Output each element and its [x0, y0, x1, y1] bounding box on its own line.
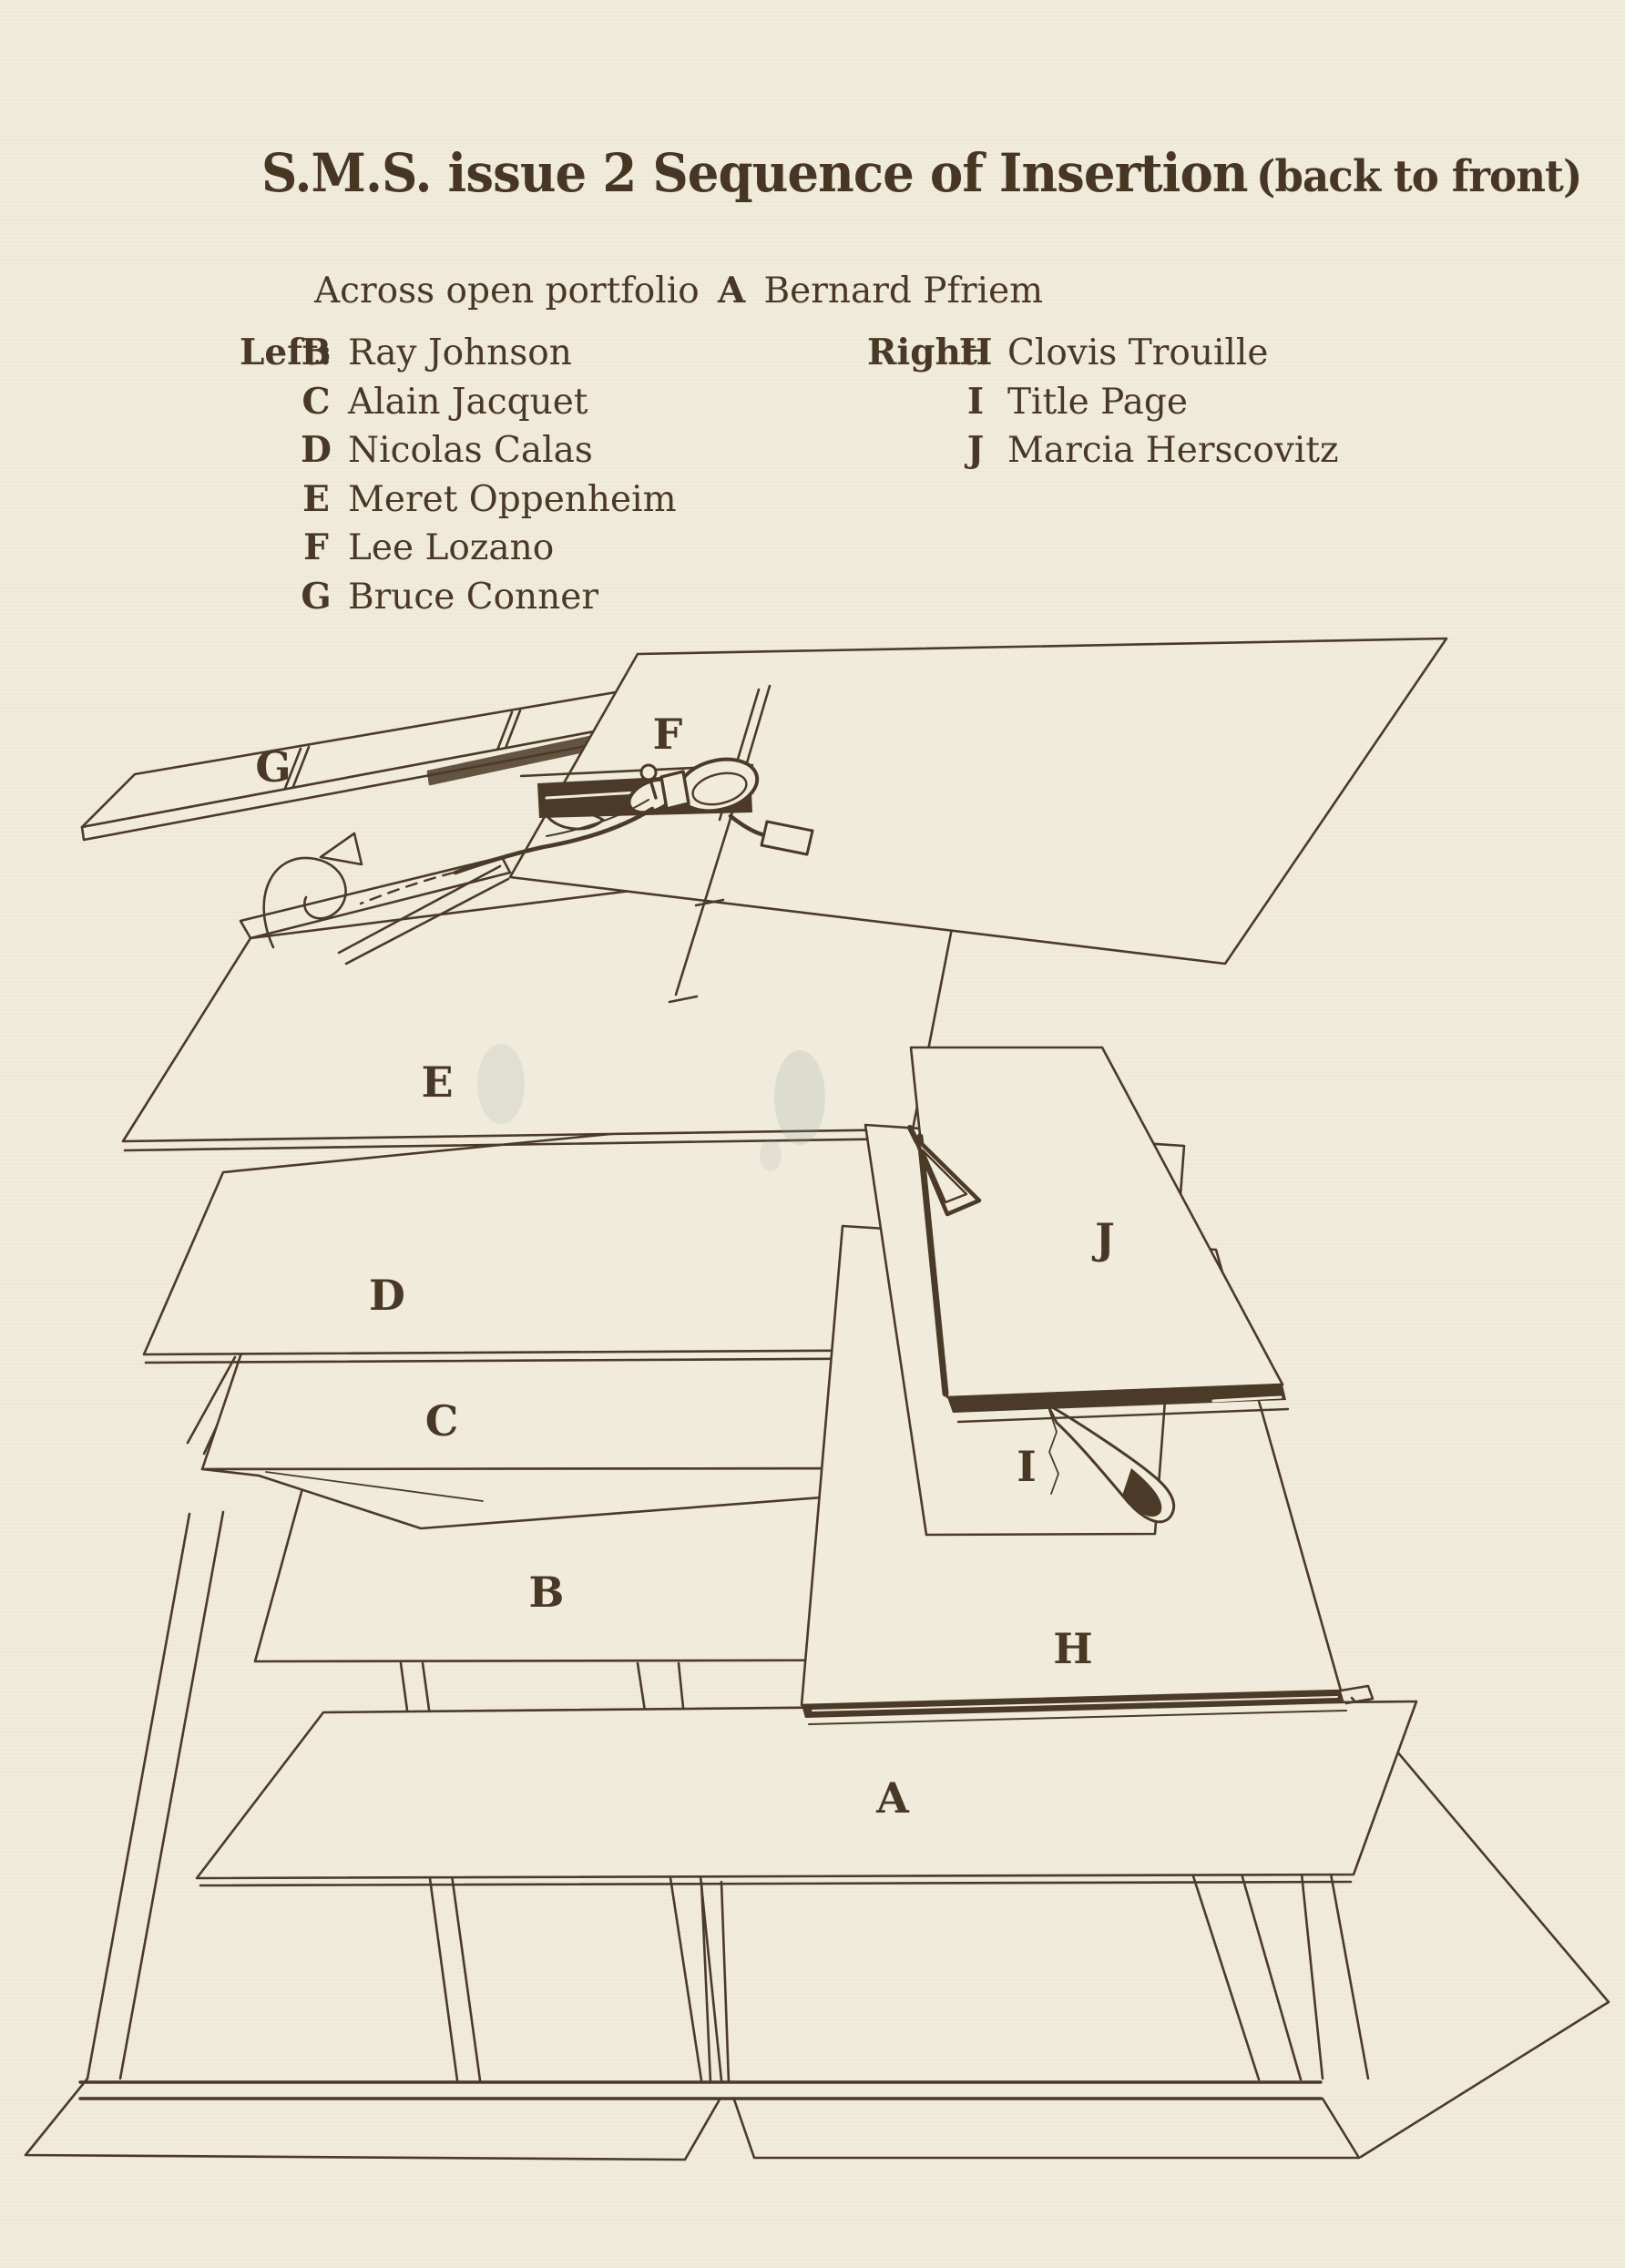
diagram-label-E: E: [421, 1061, 453, 1103]
diagram-label-I: I: [1017, 1446, 1037, 1487]
insertion-sequence-diagram: [0, 0, 1625, 2268]
diagram-label-A: A: [876, 1777, 909, 1819]
diagram-label-J: J: [1095, 1218, 1115, 1260]
diagram-label-G: G: [255, 746, 291, 788]
print-smudge: [477, 1044, 525, 1124]
diagram-label-B: B: [529, 1571, 565, 1613]
sheet-A: [197, 1701, 1416, 1885]
scanned-page: S.M.S. issue 2 Sequence of Insertion(bac…: [0, 0, 1625, 2268]
diagram-label-C: C: [425, 1400, 459, 1442]
print-smudge-3: [760, 1139, 782, 1171]
diagram-label-F: F: [653, 713, 683, 755]
diagram-label-D: D: [369, 1274, 405, 1316]
print-smudge-2: [774, 1050, 825, 1145]
diagram-label-H: H: [1053, 1628, 1092, 1670]
